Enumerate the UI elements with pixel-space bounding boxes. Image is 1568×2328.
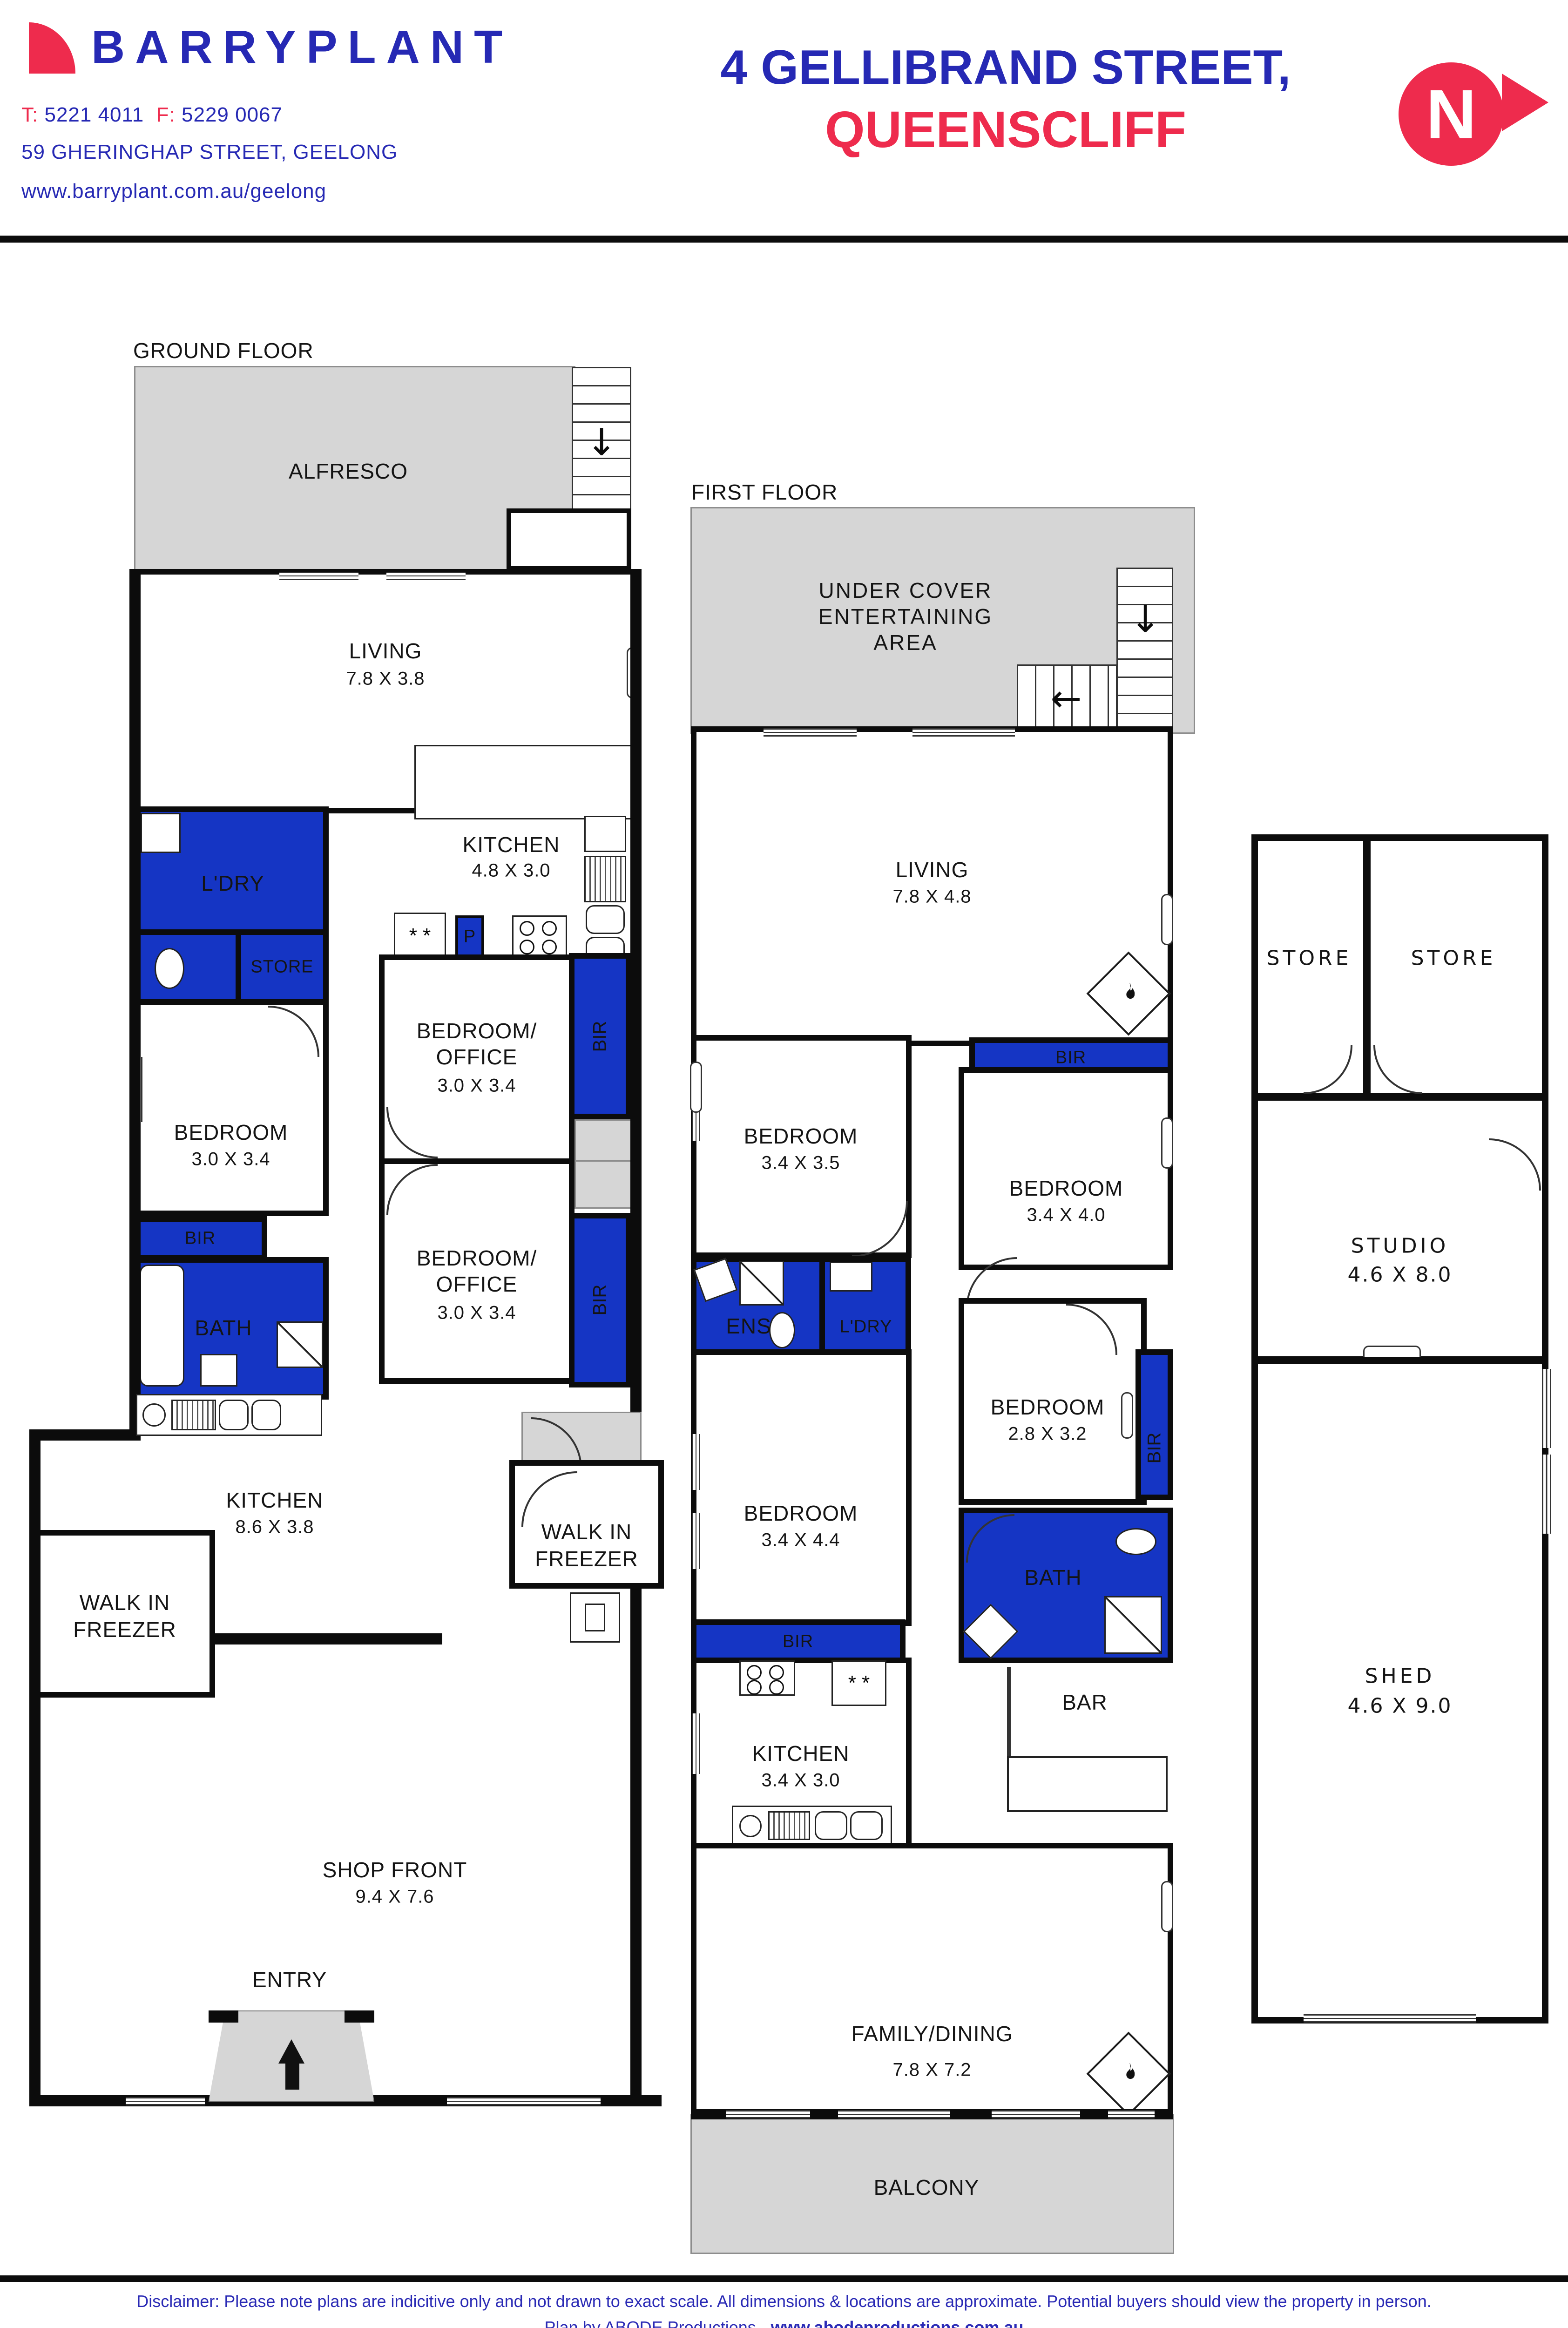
room-label-bir3: BIR (590, 1285, 611, 1316)
room-dims-bedoffice1: 3.0 X 3.4 (437, 1076, 516, 1096)
room-dims-fbed4: 3.4 X 4.4 (761, 1530, 840, 1551)
first-bedroom-4 (691, 1349, 912, 1626)
window (912, 728, 1015, 737)
property-title: 4 GELLIBRAND STREET, QUEENSCLIFF (675, 40, 1336, 159)
drainer-fixture (171, 1400, 216, 1430)
ground-floor-heading: GROUND FLOOR (133, 338, 314, 363)
room-label-fliving: LIVING (896, 857, 969, 882)
room-label-fbath: BATH (1024, 1565, 1081, 1590)
window (126, 2097, 205, 2105)
room-label-undercover3: AREA (873, 630, 937, 655)
room-label-ldry: L'DRY (201, 871, 264, 896)
sink-icon (830, 1262, 872, 1292)
window (992, 2110, 1080, 2118)
room-label-ens: ENS (726, 1313, 771, 1339)
first-bir-side (1135, 1349, 1173, 1500)
heater-icon (1161, 894, 1173, 945)
fridge-icon: * * (831, 1660, 886, 1706)
room-dims-kitchen2: 8.6 X 3.8 (235, 1517, 314, 1538)
sink-icon (586, 905, 625, 934)
wall (345, 2010, 374, 2023)
outbuilding-shed (1251, 1357, 1548, 2023)
room-label-fbirside: BIR (1144, 1433, 1165, 1464)
room-label-shed: SHED (1365, 1665, 1435, 1688)
landing-area (574, 1119, 637, 1166)
drainer-fixture (768, 1811, 810, 1840)
ground-wc (133, 929, 241, 1005)
property-title-line2: QUEENSCLIFF (675, 100, 1336, 159)
stair-landing (507, 508, 631, 571)
window (764, 728, 857, 737)
room-label-undercover1: UNDER COVER (819, 578, 993, 603)
toilet-icon (1115, 1528, 1156, 1555)
room-dims-fbed3: 2.8 X 3.2 (1008, 1424, 1087, 1445)
room-dims-bedroom: 3.0 X 3.4 (191, 1149, 270, 1170)
window (692, 1713, 700, 1774)
window (692, 1513, 700, 1569)
room-label-wif2b: FREEZER (535, 1546, 638, 1571)
room-label-pantry: P (464, 927, 476, 947)
outbuilding-studio (1251, 1094, 1548, 1363)
stair-down-arrow-icon: ↓ (586, 421, 617, 464)
cooktop-fixture (584, 816, 626, 852)
room-dims-kitchen1: 4.8 X 3.0 (472, 860, 550, 881)
dishwasher-icon (739, 1815, 762, 1837)
dishwasher-icon (142, 1403, 166, 1427)
first-floor-heading: FIRST FLOOR (691, 480, 838, 505)
bar-counter-line (1007, 1667, 1011, 1756)
room-dims-shed: 4.6 X 9.0 (1347, 1694, 1452, 1718)
heater-icon (1161, 1117, 1173, 1169)
room-label-store: STORE (250, 957, 313, 977)
fridge-icon: * * (394, 913, 446, 959)
room-label-fbed1: BEDROOM (744, 1123, 858, 1149)
room-label-bedoffice1b: OFFICE (436, 1044, 518, 1069)
room-label-balcony: BALCONY (874, 2175, 980, 2200)
room-dims-shopfront: 9.4 X 7.6 (355, 1887, 434, 1908)
room-label-bir2: BIR (185, 1229, 216, 1249)
room-dims-studio: 4.6 X 8.0 (1347, 1263, 1452, 1287)
website-link[interactable]: www.barryplant.com.au/geelong (21, 180, 326, 203)
first-bedroom-2 (959, 1067, 1173, 1270)
property-title-line1: 4 GELLIBRAND STREET, (675, 40, 1336, 95)
room-dims-fbed1: 3.4 X 3.5 (761, 1153, 840, 1174)
bathtub-icon (140, 1265, 184, 1387)
wall (209, 2010, 238, 2023)
room-label-wif2: WALK IN (541, 1519, 632, 1544)
room-label-living: LIVING (349, 638, 422, 663)
room-dims-living: 7.8 X 3.8 (346, 669, 425, 690)
room-label-bar: BAR (1062, 1690, 1108, 1715)
room-dims-fliving: 7.8 X 4.8 (892, 887, 971, 907)
sink-icon (815, 1811, 847, 1840)
room-label-fbed3: BEDROOM (991, 1394, 1105, 1420)
stove-icon (512, 915, 567, 959)
wall (210, 1633, 442, 1644)
wall (129, 569, 141, 1441)
room-label-fbed4: BEDROOM (744, 1501, 858, 1526)
room-label-fbirtop: BIR (1055, 1048, 1086, 1068)
phone-f-number: 5229 0067 (182, 103, 283, 126)
room-dims-bedoffice2: 3.0 X 3.4 (437, 1303, 516, 1324)
room-label-bir1: BIR (590, 1021, 611, 1052)
room-label-undercover2: ENTERTAINING (818, 604, 993, 629)
room-label-shopfront: SHOP FRONT (323, 1857, 467, 1882)
sink-icon (850, 1811, 883, 1840)
room-label-entry: ENTRY (252, 1967, 327, 1992)
vanity-icon (200, 1354, 237, 1387)
bar-counter (1007, 1756, 1168, 1812)
room-dims-family: 7.8 X 7.2 (892, 2060, 971, 2081)
header-divider (0, 236, 1568, 243)
washer-icon (141, 813, 181, 853)
brand-name: BARRYPLANT (91, 20, 513, 74)
room-label-bedoffice2: BEDROOM/ (417, 1245, 537, 1271)
shower-icon (277, 1321, 323, 1368)
heater-icon (690, 1062, 702, 1113)
window (279, 572, 358, 580)
toilet-icon (155, 948, 184, 989)
room-label-kitchen1: KITCHEN (463, 832, 560, 857)
stair-left-arrow-icon: ← (1050, 677, 1081, 720)
room-label-bath: BATH (195, 1315, 252, 1340)
room-dims-fkitchen: 3.4 X 3.0 (761, 1770, 840, 1791)
room-label-wif1: WALK IN (80, 1590, 170, 1615)
room-label-bedoffice1: BEDROOM/ (417, 1018, 537, 1043)
heater-icon (1121, 1392, 1133, 1439)
window (447, 2097, 601, 2105)
room-label-family: FAMILY/DINING (852, 2021, 1013, 2046)
stairs-icon (1116, 568, 1173, 733)
phone-line: T: 5221 4011 F: 5229 0067 (21, 103, 283, 127)
stair-down-arrow-icon: ↓ (1129, 598, 1161, 641)
room-label-bedroom: BEDROOM (174, 1120, 288, 1145)
garage-opening (1304, 2014, 1476, 2023)
room-label-fbirbottom: BIR (783, 1632, 813, 1652)
switch-fixture-inner (585, 1604, 605, 1631)
north-letter: N (1426, 74, 1476, 155)
phone-t-label: T: (21, 103, 38, 126)
window (726, 2110, 810, 2118)
room-label-wif1b: FREEZER (73, 1617, 176, 1642)
room-label-fbed2: BEDROOM (1009, 1176, 1123, 1201)
window (838, 2110, 950, 2118)
disclaimer-text: Disclaimer: Please note plans are indici… (0, 2292, 1568, 2311)
floorplan-page: BARRYPLANT T: 5221 4011 F: 5229 0067 59 … (0, 0, 1568, 2328)
office-address: 59 GHERINGHAP STREET, GEELONG (21, 141, 398, 164)
toilet-icon (769, 1312, 795, 1348)
credit-link[interactable]: www.abodeproductions.com.au (771, 2318, 1024, 2328)
credit-line: Plan by ABODE Productions - www.abodepro… (0, 2318, 1568, 2328)
footer-divider (0, 2275, 1568, 2282)
room-label-kitchen2: KITCHEN (226, 1488, 324, 1513)
kitchen-bench (414, 745, 633, 819)
room-label-fldry: L'DRY (840, 1317, 892, 1337)
room-label-store2: STORE (1411, 947, 1496, 970)
window (386, 572, 466, 580)
window (1542, 1369, 1551, 1448)
wall (630, 569, 642, 2106)
room-label-bedoffice2b: OFFICE (436, 1272, 518, 1297)
entry-arrow-icon (278, 2039, 304, 2064)
shower-icon (739, 1261, 784, 1306)
heater-icon (1161, 1881, 1173, 1932)
window (1108, 2110, 1155, 2118)
barryplant-sail-logo-icon (29, 22, 75, 74)
room-label-store1: STORE (1267, 947, 1352, 970)
wall (29, 1429, 141, 1441)
north-arrow-icon (1502, 74, 1548, 131)
room-dims-fbed2: 3.4 X 4.0 (1027, 1205, 1105, 1226)
phone-t-number: 5221 4011 (44, 103, 144, 126)
credit-prefix: Plan by ABODE Productions - (545, 2318, 771, 2328)
sink-icon (219, 1400, 249, 1430)
room-label-fkitchen: KITCHEN (752, 1741, 850, 1766)
sink-icon (251, 1400, 281, 1430)
landing-area (574, 1160, 637, 1209)
phone-f-label: F: (156, 103, 176, 126)
room-label-alfresco: ALFRESCO (289, 459, 408, 484)
room-label-studio: STUDIO (1351, 1234, 1449, 1258)
window (1542, 1455, 1551, 1534)
window (692, 1434, 700, 1490)
shower-icon (1104, 1596, 1162, 1654)
entry-arrow-stem (285, 2063, 299, 2090)
drainer-fixture (584, 856, 626, 902)
